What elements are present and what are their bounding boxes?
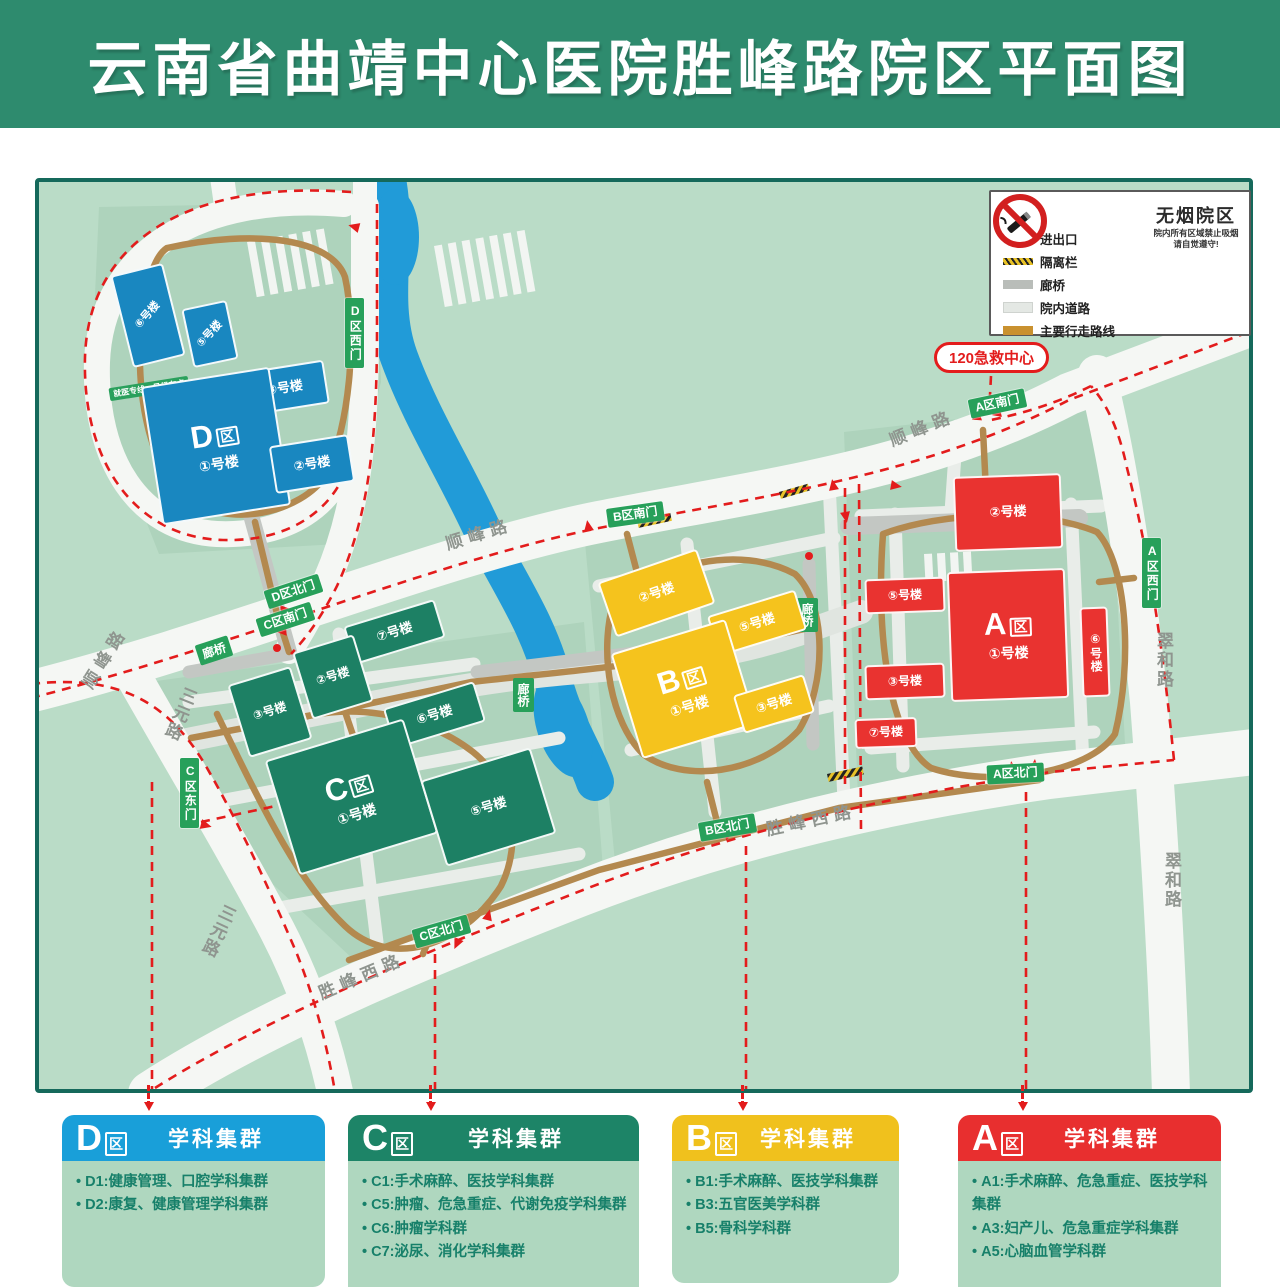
- header-banner: 云南省曲靖中心医院胜峰路院区平面图: [0, 0, 1280, 128]
- gate-c-east: C区东门: [180, 758, 199, 828]
- connector-c: [429, 1085, 432, 1107]
- list-item: D2:康复、健康管理学科集群: [76, 1194, 313, 1217]
- campus-road-icon: [1003, 302, 1033, 313]
- card-zone-a: A区 学科集群 A1:手术麻醉、危急重症、医技学科集群 A3:妇产儿、危急重症学…: [958, 1115, 1221, 1287]
- card-b-title: 学科集群: [737, 1123, 879, 1153]
- card-a-body: A1:手术麻醉、危急重症、医技学科集群 A3:妇产儿、危急重症学科集群 A5:心…: [958, 1161, 1221, 1287]
- list-item: D1:健康管理、口腔学科集群: [76, 1171, 313, 1194]
- corridor-icon: [1003, 280, 1033, 289]
- gate-d-west: D区西门: [345, 298, 364, 368]
- list-item: B5:骨科学科群: [686, 1218, 887, 1241]
- page-title: 云南省曲靖中心医院胜峰路院区平面图: [88, 21, 1193, 108]
- card-a-title: 学科集群: [1023, 1123, 1201, 1153]
- building-d1-main: D区 ①号楼: [141, 367, 291, 526]
- card-d-body: D1:健康管理、口腔学科集群 D2:康复、健康管理学科集群: [62, 1161, 325, 1287]
- list-item: A3:妇产儿、危急重症学科集群: [972, 1218, 1209, 1241]
- building-a2: ②号楼: [953, 473, 1064, 552]
- card-zone-d: D区 学科集群 D1:健康管理、口腔学科集群 D2:康复、健康管理学科集群: [62, 1115, 325, 1287]
- list-item: A5:心脑血管学科群: [972, 1241, 1209, 1264]
- connector-d: [147, 1085, 150, 1107]
- barrier-icon: [1003, 258, 1033, 265]
- no-smoking-line1: 院内所有区域禁止吸烟: [1143, 228, 1249, 239]
- list-item: A1:手术麻醉、危急重症、医技学科集群: [972, 1171, 1209, 1218]
- card-b-header: B区 学科集群: [672, 1115, 899, 1161]
- card-d-title: 学科集群: [127, 1123, 305, 1153]
- card-zone-b: B区 学科集群 B1:手术麻醉、医技学科集群 B3:五官医美学科群 B5:骨科学…: [672, 1115, 899, 1283]
- building-a5: ⑤号楼: [864, 577, 945, 615]
- walking-route-icon: [1003, 326, 1033, 335]
- no-smoking-panel: 无烟院区 院内所有区域禁止吸烟 请自觉遵守!: [1143, 192, 1249, 334]
- building-a1-main: A区 ①号楼: [947, 568, 1069, 702]
- building-a6: ⑥号楼: [1079, 607, 1110, 698]
- building-a3: ③号楼: [864, 663, 945, 701]
- corridor-label-2: 廊桥: [513, 678, 534, 712]
- gate-a-west: A区西门: [1142, 538, 1161, 608]
- road-label-cuihe-lower: 翠和路: [1159, 852, 1184, 909]
- card-c-header: C区 学科集群: [348, 1115, 639, 1161]
- no-smoking-icon: [991, 192, 1049, 250]
- card-a-header: A区 学科集群: [958, 1115, 1221, 1161]
- card-b-body: B1:手术麻醉、医技学科集群 B3:五官医美学科群 B5:骨科学科群: [672, 1161, 899, 1283]
- list-item: C5:肿瘤、危急重症、代谢免疫学科集群: [362, 1194, 627, 1217]
- road-label-cuihe-upper: 翠和路: [1151, 632, 1176, 689]
- no-smoking-title: 无烟院区: [1143, 202, 1249, 228]
- connector-a: [1021, 1085, 1024, 1107]
- emergency-120-label: 120急救中心: [934, 342, 1049, 373]
- list-item: B1:手术麻醉、医技学科集群: [686, 1171, 887, 1194]
- card-d-header: D区 学科集群: [62, 1115, 325, 1161]
- map-legend: 图列 进出口 隔离栏 廊桥 院内道路 主要行走路线 无烟院区: [989, 190, 1251, 336]
- connector-b: [741, 1085, 744, 1107]
- card-c-title: 学科集群: [413, 1123, 619, 1153]
- building-a7: ⑦号楼: [854, 717, 917, 749]
- no-smoking-line2: 请自觉遵守!: [1143, 239, 1249, 250]
- card-zone-c: C区 学科集群 C1:手术麻醉、医技学科集群 C5:肿瘤、危急重症、代谢免疫学科…: [348, 1115, 639, 1287]
- list-item: C6:肿瘤学科群: [362, 1218, 627, 1241]
- list-item: B3:五官医美学科群: [686, 1194, 887, 1217]
- gate-a-north: A区北门: [987, 763, 1045, 785]
- campus-map: 图列 进出口 隔离栏 廊桥 院内道路 主要行走路线 无烟院区: [35, 178, 1253, 1093]
- list-item: C7:泌尿、消化学科集群: [362, 1241, 627, 1264]
- campus-map-poster: 云南省曲靖中心医院胜峰路院区平面图: [0, 0, 1280, 1287]
- list-item: C1:手术麻醉、医技学科集群: [362, 1171, 627, 1194]
- card-c-body: C1:手术麻醉、医技学科集群 C5:肿瘤、危急重症、代谢免疫学科集群 C6:肿瘤…: [348, 1161, 639, 1287]
